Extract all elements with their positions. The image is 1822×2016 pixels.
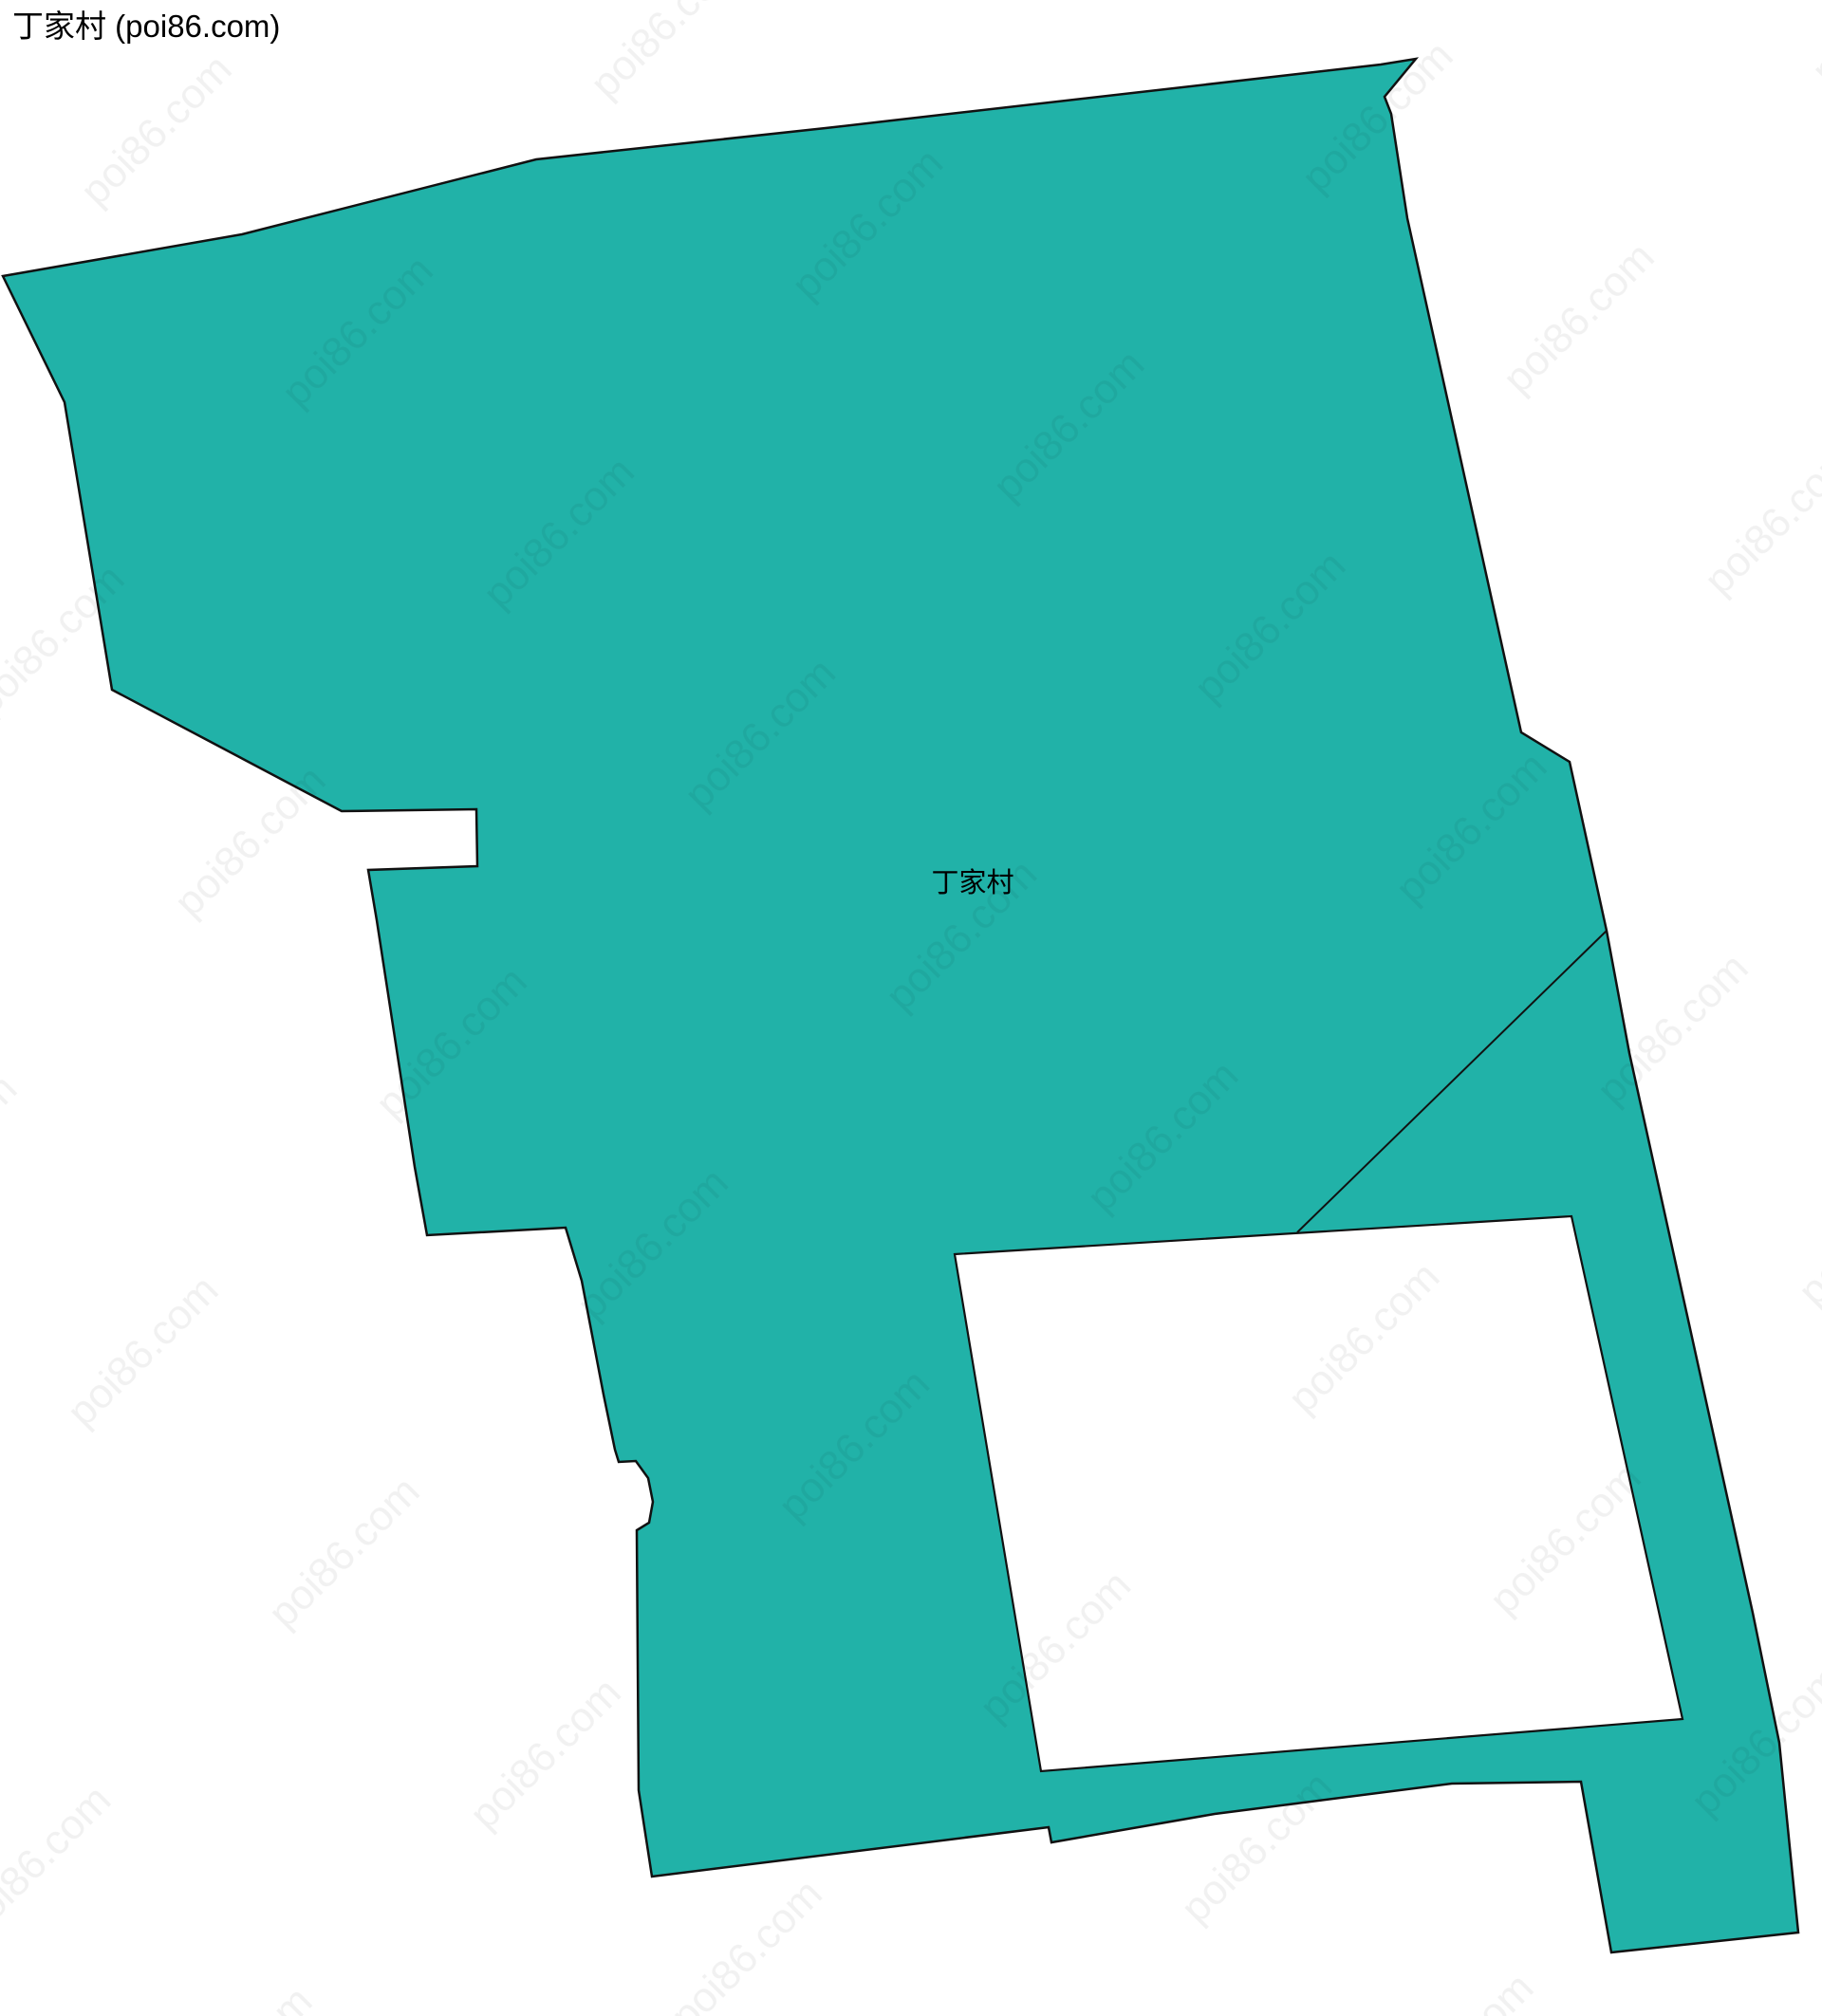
page-title: 丁家村 (poi86.com)	[12, 8, 280, 46]
map-canvas: poi86.com 丁家村	[0, 0, 1822, 2016]
watermark-layer	[0, 0, 1822, 2016]
map-page: 丁家村 (poi86.com) poi86.com 丁家村	[0, 0, 1822, 2016]
region-label: 丁家村	[931, 867, 1013, 898]
